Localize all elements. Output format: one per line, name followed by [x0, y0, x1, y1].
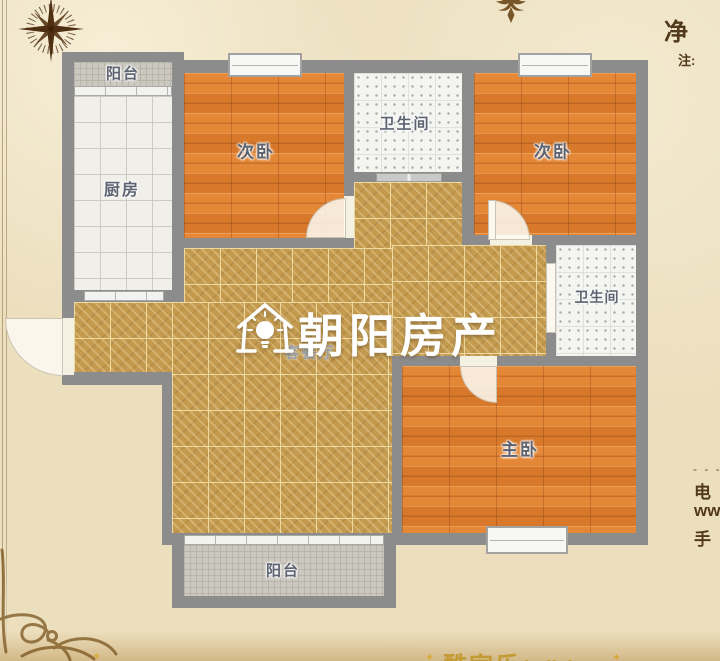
note-top-right-label: 注: — [678, 50, 695, 69]
corner-flourish-icon — [0, 548, 154, 661]
bedroom-right-door-leaf — [488, 200, 496, 240]
note-right-line2: ww — [694, 501, 720, 521]
room-label-bathroom-top: 卫生间 — [379, 113, 430, 134]
bedroom-left-window — [228, 53, 302, 77]
footer-logo: 酷家乐 kujiale.com — [443, 646, 628, 661]
note-right-line3: 手 — [694, 525, 711, 550]
living-floor-hall-top — [354, 182, 462, 248]
room-label-bedroom-left: 次卧 — [237, 138, 275, 163]
room-label-balcony-top: 阳台 — [106, 63, 140, 84]
room-label-balcony-bottom: 阳台 — [266, 560, 300, 581]
house-bulb-icon — [236, 301, 294, 355]
wall-bedroom-right-left — [462, 60, 474, 245]
footer-star-left: ✦ — [425, 651, 434, 661]
wall-bedroom-left-bottom — [172, 238, 354, 248]
room-label-master-bedroom: 主卧 — [501, 436, 539, 461]
living-floor-upper — [184, 248, 392, 302]
note-right-dashes: - - - - — [693, 462, 720, 476]
note-right-line1: 电 — [694, 478, 711, 503]
bathroom-top-sliding-door — [376, 173, 442, 182]
master-bedroom-window — [486, 526, 568, 554]
balcony-top-window — [74, 86, 172, 96]
note-top-right-char: 净 — [664, 12, 688, 47]
room-label-bathroom-right: 卫生间 — [575, 287, 620, 307]
wall-step-horizontal — [62, 372, 174, 385]
footer-brand-cn: 酷家乐 — [443, 646, 521, 661]
fleuron-ornament-icon — [489, 0, 533, 24]
living-floor-entry — [74, 302, 172, 372]
wall-outer-right — [636, 60, 648, 545]
balcony-bottom-door-bar — [184, 535, 384, 545]
footer-star-right: ✦ — [612, 651, 621, 661]
entry-door-gap — [62, 318, 74, 375]
floor-plan-page: 阳台 厨房 次卧 卫生间 次卧 卫生间 客餐厅 主卧 阳台 朝阳房产 净 注: … — [0, 0, 720, 661]
entry-door-arc — [5, 318, 63, 376]
room-label-bedroom-right: 次卧 — [534, 138, 572, 163]
watermark-brand: 朝阳房产 — [298, 300, 502, 366]
room-label-kitchen: 厨房 — [104, 176, 140, 200]
wall-master-left — [392, 356, 402, 545]
wall-balcony-bottom-bottom — [172, 596, 396, 608]
bathroom-right-sliding-door — [546, 263, 556, 333]
wall-kitchen-right — [172, 52, 184, 302]
bedroom-right-window — [518, 53, 592, 77]
footer-star-left-far: ✦ — [92, 650, 101, 661]
kitchen-door-bar — [84, 291, 164, 301]
wall-balcony-top — [62, 52, 184, 62]
